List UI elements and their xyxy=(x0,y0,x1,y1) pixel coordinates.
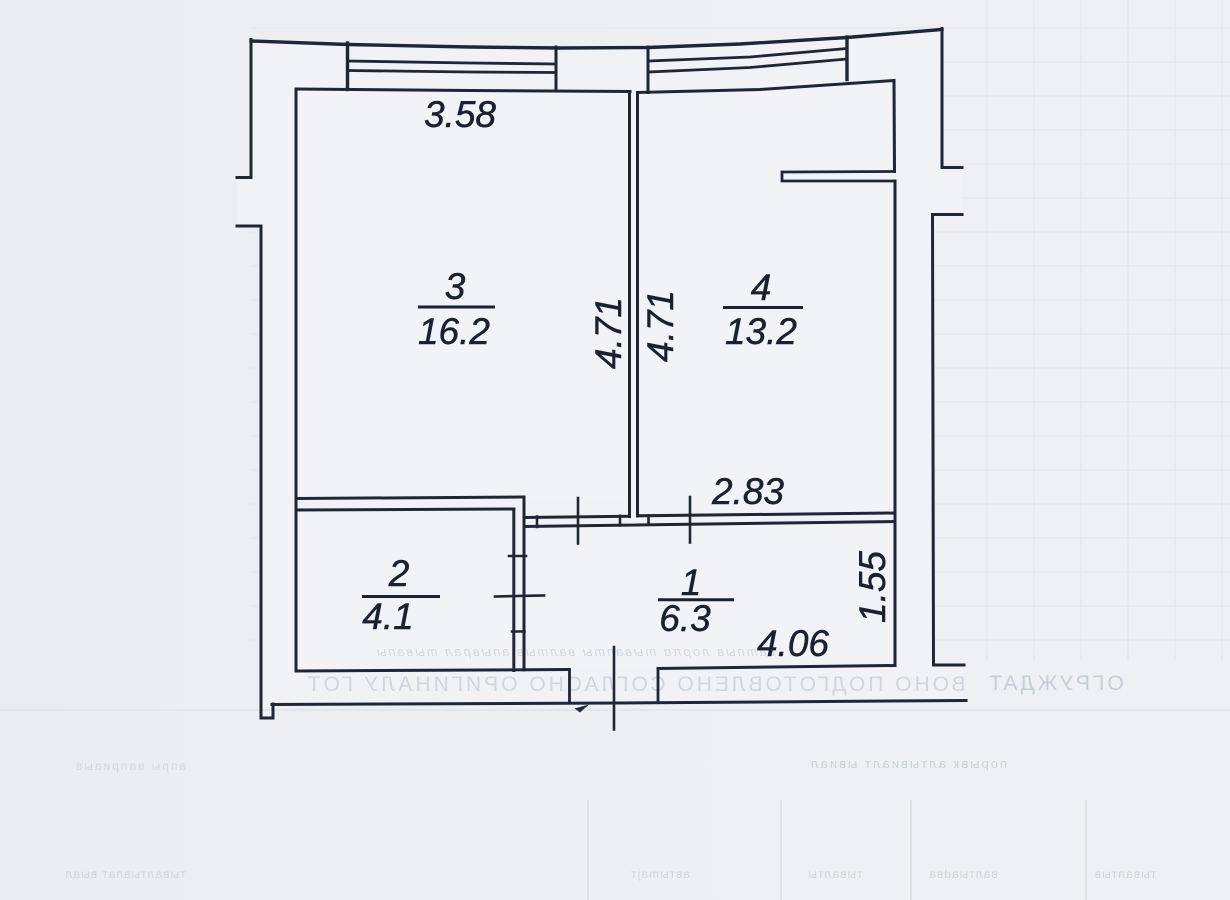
svg-text:4.06: 4.06 xyxy=(757,623,829,664)
svg-text:автыmajт: автыmajт xyxy=(630,867,690,881)
svg-text:3.58: 3.58 xyxy=(424,94,496,135)
svg-text:13.2: 13.2 xyxy=(725,311,797,352)
svg-text:4.71: 4.71 xyxy=(640,290,681,362)
svg-text:4.1: 4.1 xyxy=(362,596,413,637)
svg-text:3: 3 xyxy=(445,266,466,307)
svg-text:4.71: 4.71 xyxy=(588,297,629,369)
svg-text:тывалтыв: тывалтыв xyxy=(1094,867,1157,881)
svg-text:ВОНО ПОДГОТОВЛЕНО СОГЛАСНО ОРИ: ВОНО ПОДГОТОВЛЕНО СОГЛАСНО ОРИГИНАЛУ ГОТ xyxy=(305,673,966,696)
svg-text:тывалты: тывалты xyxy=(807,867,862,881)
svg-text:2.83: 2.83 xyxy=(711,471,784,512)
svg-text:1.55: 1.55 xyxy=(852,551,893,623)
svg-text:валтыadва: валтыadва xyxy=(928,867,997,881)
svg-text:6.3: 6.3 xyxy=(659,598,711,639)
svg-text:тывалтывлат выал: тывалтывлат выал xyxy=(64,867,185,881)
svg-text:4: 4 xyxy=(751,267,772,308)
svg-text:порывк алтывиалт ывиал: порывк алтывиалт ывиал xyxy=(809,756,1007,771)
svg-text:апры ваприаыв: апры ваприаыв xyxy=(74,759,186,773)
svg-text:ватпыв лορπα тывапты валтыв ап: ватпыв лορπα тывапты валтыв апыврал тыва… xyxy=(375,644,775,659)
svg-text:16.2: 16.2 xyxy=(418,311,490,352)
svg-text:ОГРУЖДАТ: ОГРУЖДАТ xyxy=(986,672,1123,695)
svg-text:1: 1 xyxy=(681,562,702,603)
svg-text:2: 2 xyxy=(388,553,410,594)
